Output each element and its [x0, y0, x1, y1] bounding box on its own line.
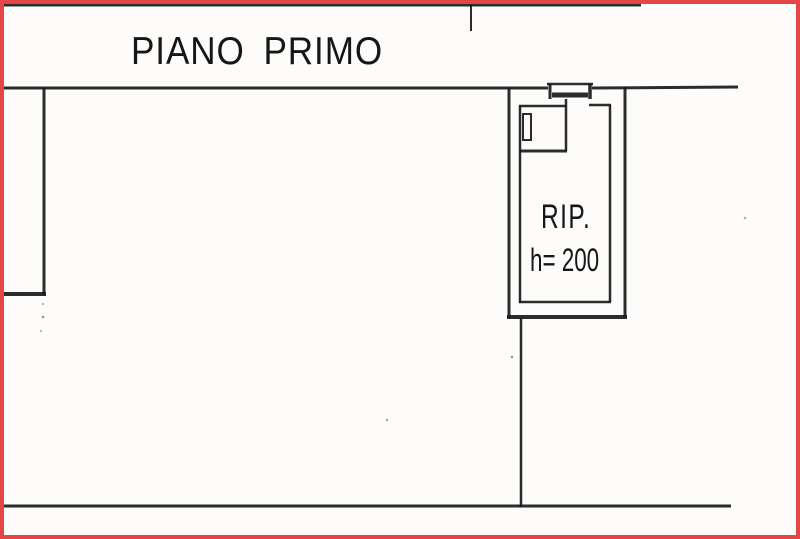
scan-speck — [42, 316, 45, 319]
floor-title: PIANO PRIMO — [131, 32, 383, 71]
scan-speck — [386, 419, 389, 422]
floorplan-drawing — [0, 0, 800, 539]
fixture-box — [523, 114, 531, 140]
room-height-note: h= 200 — [530, 244, 599, 276]
room-label: RIP. — [541, 200, 591, 234]
scan-speck — [40, 330, 42, 332]
upper-wall-line-right — [592, 87, 738, 88]
scan-speck — [511, 356, 514, 359]
scan-speck — [744, 217, 747, 220]
doorway-leaf-bar — [552, 93, 588, 98]
floorplan-page: PIANO PRIMO RIP. h= 200 — [0, 0, 800, 539]
scan-speck — [42, 303, 44, 305]
